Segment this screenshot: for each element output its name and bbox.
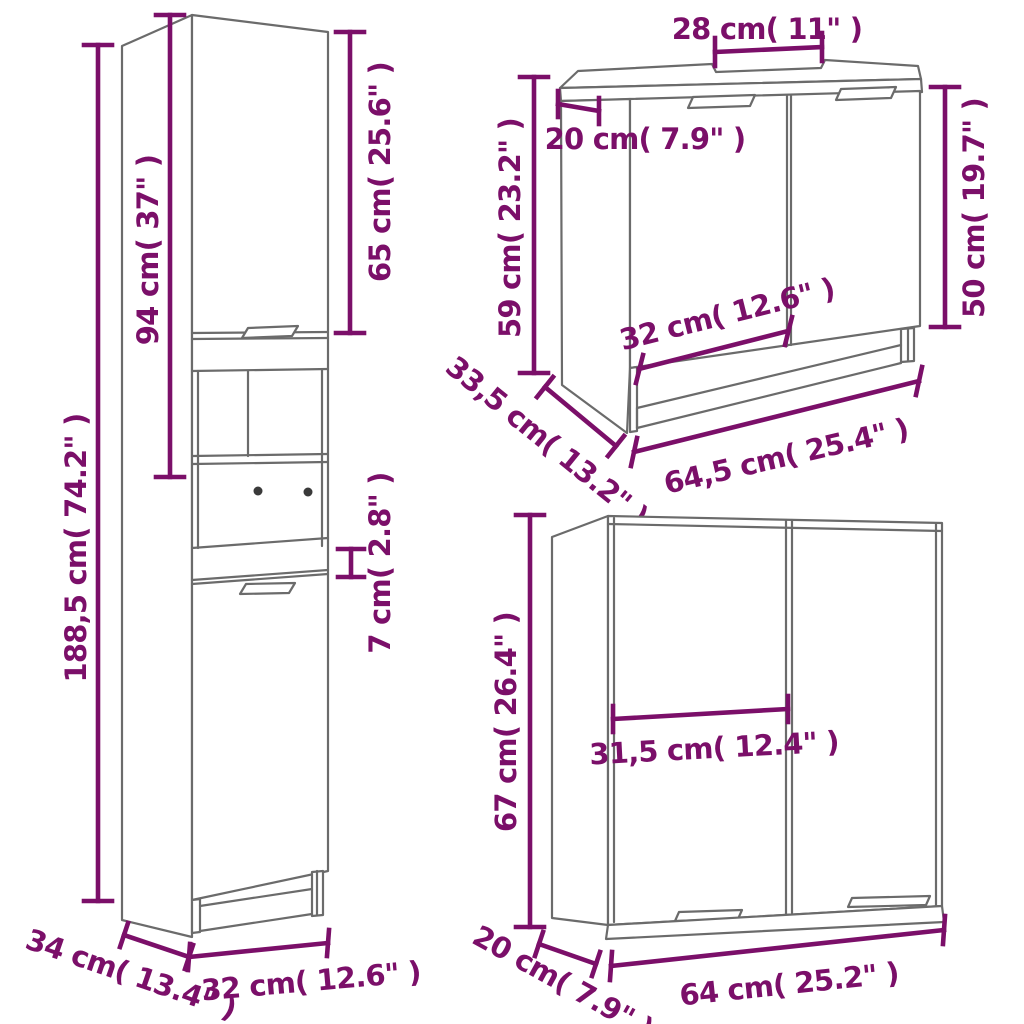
dim-label-sink-door-height: 50 cm( 19.7" ) xyxy=(957,98,991,318)
mirror-cabinet-side-panel xyxy=(552,516,608,925)
dim-label-upper-door: 65 cm( 25.6" ) xyxy=(363,62,397,282)
mirror-right-door-handle xyxy=(848,896,930,907)
dim-label-sink-height: 59 cm( 23.2" ) xyxy=(493,118,527,338)
diagram-canvas: 188,5 cm( 74.2" ) 94 cm( 37" ) 65 cm( 25… xyxy=(0,0,1024,1024)
dim-mirror-height: 67 cm( 26.4" ) xyxy=(489,515,544,927)
dim-label-width: 32 cm( 12.6" ) xyxy=(200,954,422,1007)
dim-middle-band-height: 7 cm( 2.8" ) xyxy=(338,472,397,653)
sink-left-door-handle xyxy=(688,95,755,108)
shelf-pin-hole xyxy=(254,487,263,496)
mirror-cabinet-front-face xyxy=(608,516,942,925)
dim-label-sink-width: 64,5 cm( 25.4" ) xyxy=(661,411,912,500)
dim-total-height: 188,5 cm( 74.2" ) xyxy=(59,45,112,901)
tall-cabinet-drawing xyxy=(122,15,328,937)
product-dimension-diagram: 188,5 cm( 74.2" ) 94 cm( 37" ) 65 cm( 25… xyxy=(0,0,1024,1024)
dim-sink-width: 64,5 cm( 25.4" ) xyxy=(631,367,922,501)
dim-label-total-height: 188,5 cm( 74.2" ) xyxy=(59,414,93,683)
lower-door-handle xyxy=(240,583,295,594)
sink-cabinet-drawing xyxy=(560,60,922,433)
dim-label-mirror-width: 64 cm( 25.2" ) xyxy=(678,956,900,1013)
dim-cutout-width: 28 cm( 11" ) xyxy=(672,12,862,66)
dim-upper-door-height: 65 cm( 25.6" ) xyxy=(336,32,397,333)
dim-label-cutout-offset: 20 cm( 7.9" ) xyxy=(545,122,746,156)
dim-sink-height: 59 cm( 23.2" ) xyxy=(493,77,548,373)
dim-label-upper-section: 94 cm( 37" ) xyxy=(131,155,165,345)
sink-right-door-handle xyxy=(836,87,896,100)
upper-door-handle xyxy=(242,326,298,338)
dim-label-cutout-width: 28 cm( 11" ) xyxy=(672,12,862,46)
shelf-pin-hole xyxy=(304,488,313,497)
tall-cabinet-front-face xyxy=(192,15,328,900)
dim-width: 32 cm( 12.6" ) xyxy=(188,930,422,1008)
dim-sink-door-height: 50 cm( 19.7" ) xyxy=(931,87,991,327)
dim-label-mirror-height: 67 cm( 26.4" ) xyxy=(489,612,523,832)
dim-label-middle-band: 7 cm( 2.8" ) xyxy=(363,472,397,653)
